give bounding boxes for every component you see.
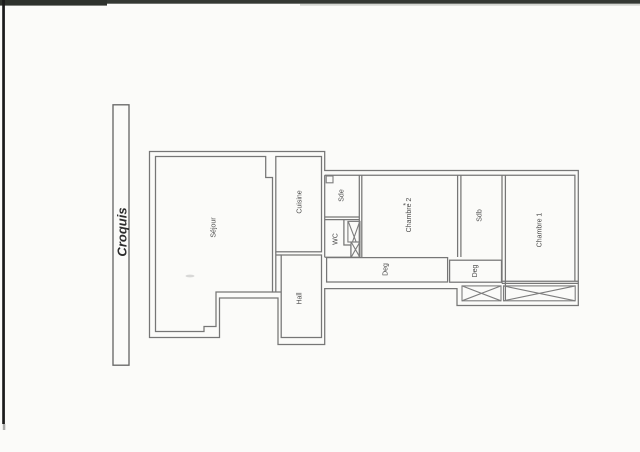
svg-text:Séjour: Séjour <box>211 217 218 238</box>
svg-text:Cuisine: Cuisine <box>297 190 304 213</box>
svg-text:Chambre 2: Chambre 2 <box>406 198 413 233</box>
svg-text:Chambre 1: Chambre 1 <box>537 213 544 248</box>
svg-text:*: * <box>403 203 410 206</box>
svg-text:Sdb: Sdb <box>477 209 484 222</box>
svg-text:Sde: Sde <box>338 189 345 202</box>
svg-text:Deg: Deg <box>472 264 479 277</box>
svg-text:Croquis: Croquis <box>114 207 129 256</box>
svg-text:Deg: Deg <box>383 263 390 276</box>
svg-text:WC: WC <box>332 233 339 245</box>
svg-text:Hall: Hall <box>297 292 304 305</box>
